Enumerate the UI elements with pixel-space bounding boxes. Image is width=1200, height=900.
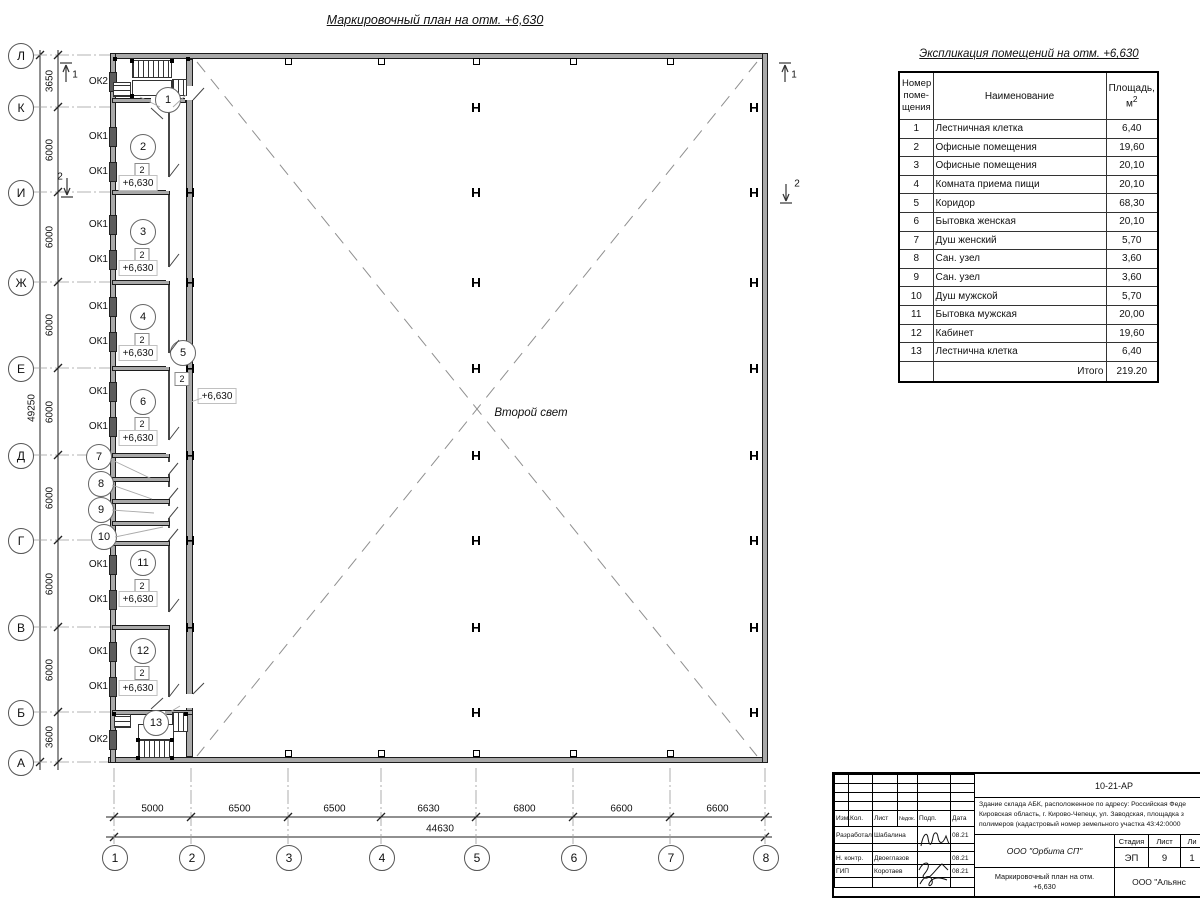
- project-description-line: полимеров (кадастровый номер земельного …: [979, 820, 1200, 830]
- stair-newel: [130, 94, 134, 98]
- axis-bubble-row: Г: [8, 528, 34, 554]
- room-number-cell: 6: [899, 212, 933, 231]
- tb-role: Разработал: [835, 827, 873, 844]
- door-opening: [166, 528, 171, 540]
- schedule-row: 2Офисные помещения19,60: [899, 138, 1158, 157]
- room-area-cell: 5,70: [1106, 287, 1158, 306]
- column-marker-icon: [667, 750, 674, 757]
- wall-interior: [112, 453, 170, 458]
- axis-bubble-col: 3: [276, 845, 302, 871]
- room-name-cell: Кабинет: [933, 324, 1106, 343]
- column-marker-icon: [473, 750, 480, 757]
- organization-name-2: ООО "Альянс: [1115, 868, 1200, 896]
- wall-right: [762, 53, 768, 763]
- stair-newel: [112, 712, 116, 716]
- stair-newel: [136, 738, 140, 742]
- schedule-header-area-line: Площадь,: [1109, 83, 1156, 94]
- room-area-cell: 3,60: [1106, 250, 1158, 269]
- schedule-row: 11Бытовка мужская20,00: [899, 305, 1158, 324]
- area-unit-sup: 2: [1133, 94, 1138, 104]
- stair-newel: [136, 756, 140, 760]
- sheet-title: Маркировочный план на отм. +6,630: [975, 868, 1115, 896]
- tb-col-podp: Подп.: [918, 811, 951, 827]
- wall-interior: [112, 499, 170, 504]
- second-light-label: Второй свет: [494, 407, 567, 419]
- window-label: ОК1: [74, 594, 108, 605]
- room-number-bubble: 5: [170, 340, 196, 366]
- window-symbol: [109, 162, 117, 182]
- section-mark-label: 1: [791, 70, 797, 81]
- room-number-cell: 1: [899, 120, 933, 139]
- room-number-cell: 3: [899, 157, 933, 176]
- axis-bubble-row: И: [8, 180, 34, 206]
- schedule-header-name: Наименование: [933, 72, 1106, 120]
- steel-column-icon: [472, 708, 480, 717]
- door-opening: [166, 697, 171, 710]
- stage-value: ЭП: [1115, 848, 1149, 868]
- window-symbol: [109, 642, 117, 662]
- stair-newel: [184, 712, 188, 716]
- stair-newel: [170, 756, 174, 760]
- tb-col-ndok: №док.: [898, 811, 918, 827]
- stair-newel: [186, 57, 190, 61]
- dimension-value: 6000: [45, 314, 56, 336]
- steel-column-icon: [472, 451, 480, 460]
- room-number-cell: 8: [899, 250, 933, 269]
- door-mark-box: 2: [135, 666, 150, 680]
- dimension-value: 6000: [45, 138, 56, 160]
- steel-column-icon: [472, 103, 480, 112]
- elevation-label: +6,630: [119, 345, 158, 361]
- steel-column-icon: [750, 364, 758, 373]
- room-name-cell: Душ женский: [933, 231, 1106, 250]
- title-block-right: 10-21-АР Здание склада АБК, расположенно…: [974, 774, 1200, 896]
- window-symbol: [109, 417, 117, 437]
- stage-header: Стадия: [1115, 835, 1149, 848]
- elevation-label: +6,630: [119, 680, 158, 696]
- tb-col-data: Дата: [951, 811, 975, 827]
- room-number-cell: 4: [899, 175, 933, 194]
- schedule-total-empty: [899, 361, 933, 382]
- window-label: ОК2: [74, 734, 108, 745]
- steel-column-icon: [472, 364, 480, 373]
- room-number-bubble: 7: [86, 444, 112, 470]
- room-number-cell: 2: [899, 138, 933, 157]
- steel-column-icon: [186, 278, 194, 287]
- door-opening: [166, 440, 171, 454]
- room-area-cell: 20,10: [1106, 175, 1158, 194]
- room-number-cell: 10: [899, 287, 933, 306]
- tb-col-kol: Кол.: [849, 811, 873, 827]
- window-symbol: [109, 730, 117, 750]
- steel-column-icon: [186, 188, 194, 197]
- stair-newel: [170, 738, 174, 742]
- axis-bubble-col: 2: [179, 845, 205, 871]
- steel-column-icon: [750, 103, 758, 112]
- room-name-cell: Лестнична клетка: [933, 343, 1106, 362]
- steel-column-icon: [750, 708, 758, 717]
- tb-col-list: Лист: [873, 811, 898, 827]
- project-description-line: Здание склада АБК, расположенное по адре…: [979, 800, 1200, 810]
- room-number-bubble: 1: [155, 87, 181, 113]
- column-marker-icon: [285, 58, 292, 65]
- dimension-value: 6800: [513, 804, 535, 815]
- sheet-header: Лист: [1149, 835, 1181, 848]
- dimension-value: 6630: [417, 804, 439, 815]
- schedule-row: 12Кабинет19,60: [899, 324, 1158, 343]
- dimension-value: 6500: [228, 804, 250, 815]
- area-unit: м: [1126, 98, 1133, 109]
- window-label: ОК1: [74, 131, 108, 142]
- room-area-cell: 6,40: [1106, 343, 1158, 362]
- door-mark-box: 2: [175, 372, 190, 386]
- signature: [918, 828, 952, 852]
- section-mark-label: 2: [57, 172, 63, 183]
- dimension-total: 49250: [27, 394, 38, 422]
- steel-column-icon: [472, 278, 480, 287]
- wall-bottom: [108, 757, 768, 763]
- stage-grid: Стадия Лист Ли ЭП 9 1: [1115, 835, 1200, 868]
- schedule-row: 5Коридор68,30: [899, 194, 1158, 213]
- room-number-cell: 5: [899, 194, 933, 213]
- room-name-cell: Комната приема пищи: [933, 175, 1106, 194]
- wall-interior: [112, 541, 170, 546]
- column-marker-icon: [570, 58, 577, 65]
- project-description: Здание склада АБК, расположенное по адре…: [975, 798, 1200, 835]
- wall-corridor-hall: [186, 59, 193, 757]
- tb-name: Шабалина: [873, 827, 918, 844]
- room-name-cell: Офисные помещения: [933, 157, 1106, 176]
- room-name-cell: Бытовка мужская: [933, 305, 1106, 324]
- room-number-bubble: 12: [130, 638, 156, 664]
- schedule-row: 1Лестничная клетка6,40: [899, 120, 1158, 139]
- tb-role: Н. контр.: [835, 852, 873, 865]
- room-number-cell: 12: [899, 324, 933, 343]
- dimension-value: 6000: [45, 486, 56, 508]
- stair-flight: [113, 82, 131, 97]
- steel-column-icon: [472, 623, 480, 632]
- column-marker-icon: [378, 58, 385, 65]
- schedule-header-number-line: поме-: [902, 90, 931, 102]
- axis-bubble-row: В: [8, 615, 34, 641]
- schedule-header-number-line: щения: [902, 102, 931, 114]
- window-symbol: [109, 215, 117, 235]
- room-schedule: Экспликация помещений на отм. +6,630 Ном…: [898, 48, 1160, 383]
- schedule-header-number-line: Номер: [902, 78, 931, 90]
- schedule-header-area: Площадь, м2: [1106, 72, 1158, 120]
- title-block: Изм. Кол. Лист №док. Подп. Дата Разработ…: [832, 772, 1200, 898]
- room-name-cell: Сан. узел: [933, 268, 1106, 287]
- room-number-bubble: 8: [88, 471, 114, 497]
- room-number-cell: 11: [899, 305, 933, 324]
- room-name-cell: Душ мужской: [933, 287, 1106, 306]
- window-symbol: [109, 332, 117, 352]
- column-marker-icon: [570, 750, 577, 757]
- door-opening: [185, 694, 194, 708]
- schedule-row: 10Душ мужской5,70: [899, 287, 1158, 306]
- schedule-row: 3Офисные помещения20,10: [899, 157, 1158, 176]
- column-marker-icon: [285, 750, 292, 757]
- sheets-header: Ли: [1181, 835, 1200, 848]
- window-symbol: [109, 677, 117, 697]
- window-label: ОК1: [74, 301, 108, 312]
- stair-flight: [132, 60, 172, 78]
- window-symbol: [109, 250, 117, 270]
- window-label: ОК1: [74, 219, 108, 230]
- tb-name: Двоеглазов: [873, 852, 918, 865]
- room-number-cell: 7: [899, 231, 933, 250]
- steel-column-icon: [472, 536, 480, 545]
- stair-newel: [130, 59, 134, 63]
- room-number-bubble: 6: [130, 389, 156, 415]
- room-area-cell: 20,10: [1106, 157, 1158, 176]
- window-symbol: [109, 555, 117, 575]
- tb-date: 08.21: [951, 827, 975, 844]
- sheet-title-line: +6,630: [1033, 882, 1056, 892]
- room-area-cell: 3,60: [1106, 268, 1158, 287]
- tb-role: ГИП: [835, 865, 873, 878]
- door-mark-box: 2: [135, 417, 150, 431]
- wall-interior: [112, 521, 170, 526]
- steel-column-icon: [472, 188, 480, 197]
- room-number-bubble: 2: [130, 134, 156, 160]
- sheets-value: 1: [1181, 848, 1200, 868]
- schedule-title: Экспликация помещений на отм. +6,630: [898, 48, 1160, 60]
- axis-bubble-row: Е: [8, 356, 34, 382]
- axis-bubble-col: 5: [464, 845, 490, 871]
- room-name-cell: Лестничная клетка: [933, 120, 1106, 139]
- tb-col-izm: Изм.: [835, 811, 849, 827]
- organization-name: ООО "Орбита СП": [975, 835, 1115, 868]
- window-symbol: [109, 590, 117, 610]
- room-area-cell: 19,60: [1106, 324, 1158, 343]
- schedule-row: 4Комната приема пищи20,10: [899, 175, 1158, 194]
- axis-bubble-row: К: [8, 95, 34, 121]
- room-number-bubble: 3: [130, 219, 156, 245]
- schedule-table: Номер поме- щения Наименование Площадь, …: [898, 71, 1159, 383]
- dimension-value: 6600: [706, 804, 728, 815]
- elevation-label: +6,630: [198, 388, 237, 404]
- dimension-value: 6500: [323, 804, 345, 815]
- dimension-total: 44630: [426, 824, 454, 835]
- tb-name: Коротаев: [873, 865, 918, 878]
- room-number-bubble: 10: [91, 524, 117, 550]
- window-label: ОК1: [74, 336, 108, 347]
- window-symbol: [109, 297, 117, 317]
- schedule-total-row: Итого 219.20: [899, 361, 1158, 382]
- window-label: ОК1: [74, 646, 108, 657]
- axis-bubble-col: 6: [561, 845, 587, 871]
- window-label: ОК1: [74, 421, 108, 432]
- project-description-line: Кировская область, г. Кирово-Чепецк, ул.…: [979, 810, 1200, 820]
- axis-bubble-col: 4: [369, 845, 395, 871]
- window-label: ОК1: [74, 254, 108, 265]
- room-number-bubble: 4: [130, 304, 156, 330]
- room-area-cell: 68,30: [1106, 194, 1158, 213]
- sheet-title-line: Маркировочный план на отм.: [995, 872, 1094, 882]
- stair-newel: [170, 59, 174, 63]
- schedule-header-area-unit: м2: [1109, 94, 1156, 109]
- door-opening: [166, 612, 171, 625]
- wall-interior: [112, 366, 170, 371]
- axis-bubble-col: 8: [753, 845, 779, 871]
- room-area-cell: 20,00: [1106, 305, 1158, 324]
- elevation-label: +6,630: [119, 591, 158, 607]
- wall-interior: [112, 625, 170, 630]
- wall-interior: [112, 280, 170, 285]
- column-marker-icon: [667, 58, 674, 65]
- door-opening: [166, 462, 171, 474]
- axis-bubble-row: Л: [8, 43, 34, 69]
- column-marker-icon: [473, 58, 480, 65]
- elevation-label: +6,630: [119, 430, 158, 446]
- room-area-cell: 6,40: [1106, 120, 1158, 139]
- axis-bubble-row: А: [8, 750, 34, 776]
- steel-column-icon: [750, 188, 758, 197]
- elevation-label: +6,630: [119, 175, 158, 191]
- window-symbol: [109, 382, 117, 402]
- tb-date: 08.21: [951, 852, 975, 865]
- room-number-bubble: 9: [88, 497, 114, 523]
- door-opening: [166, 267, 171, 281]
- axis-bubble-col: 1: [102, 845, 128, 871]
- signature: [916, 858, 952, 890]
- steel-column-icon: [750, 451, 758, 460]
- steel-column-icon: [750, 536, 758, 545]
- tb-name: [873, 844, 918, 852]
- window-label: ОК1: [74, 386, 108, 397]
- axis-bubble-col: 7: [658, 845, 684, 871]
- stair-newel: [113, 57, 117, 61]
- room-area-cell: 20,10: [1106, 212, 1158, 231]
- dimension-value: 3600: [45, 726, 56, 748]
- room-area-cell: 19,60: [1106, 138, 1158, 157]
- section-mark-label: 1: [72, 70, 78, 81]
- room-name-cell: Коридор: [933, 194, 1106, 213]
- schedule-total-label: Итого: [933, 361, 1106, 382]
- stair-flight: [138, 740, 174, 758]
- schedule-header-number: Номер поме- щения: [899, 72, 933, 120]
- window-label: ОК1: [74, 559, 108, 570]
- tb-date: 08.21: [951, 865, 975, 878]
- drawing-sheet: Маркировочный план на отм. +6,630 Второй…: [0, 0, 1200, 900]
- dimension-value: 6000: [45, 400, 56, 422]
- schedule-row: 13Лестнична клетка6,40: [899, 343, 1158, 362]
- window-label: ОК1: [74, 681, 108, 692]
- schedule-row: 9Сан. узел3,60: [899, 268, 1158, 287]
- dimension-value: 5000: [141, 804, 163, 815]
- stair-flight: [114, 714, 131, 728]
- column-marker-icon: [378, 750, 385, 757]
- door-opening: [166, 177, 171, 191]
- room-number-bubble: 11: [130, 550, 156, 576]
- dimension-value: 6000: [45, 658, 56, 680]
- window-symbol: [109, 127, 117, 147]
- door-opening: [166, 506, 171, 518]
- tb-date: [951, 844, 975, 852]
- dimension-value: 6000: [45, 572, 56, 594]
- dimension-value: 6600: [610, 804, 632, 815]
- sheet-value: 9: [1149, 848, 1181, 868]
- schedule-row: 7Душ женский5,70: [899, 231, 1158, 250]
- tb-role: [835, 844, 873, 852]
- room-name-cell: Бытовка женская: [933, 212, 1106, 231]
- room-name-cell: Офисные помещения: [933, 138, 1106, 157]
- wall-interior: [112, 477, 170, 482]
- steel-column-icon: [750, 278, 758, 287]
- steel-column-icon: [750, 623, 758, 632]
- room-name-cell: Сан. узел: [933, 250, 1106, 269]
- title-block-left-grid: Изм. Кол. Лист №док. Подп. Дата Разработ…: [834, 774, 975, 888]
- steel-column-icon: [186, 451, 194, 460]
- room-area-cell: 5,70: [1106, 231, 1158, 250]
- dimension-value: 6000: [45, 226, 56, 248]
- axis-bubble-row: Д: [8, 443, 34, 469]
- schedule-row: 8Сан. узел3,60: [899, 250, 1158, 269]
- plan-title: Маркировочный план на отм. +6,630: [255, 13, 615, 27]
- document-code: 10-21-АР: [975, 774, 1200, 798]
- section-mark-label: 2: [794, 179, 800, 190]
- door-opening: [166, 487, 171, 499]
- schedule-total-value: 219.20: [1106, 361, 1158, 382]
- schedule-row: 6Бытовка женская20,10: [899, 212, 1158, 231]
- steel-column-icon: [186, 536, 194, 545]
- axis-bubble-row: Ж: [8, 270, 34, 296]
- dimension-value: 3650: [45, 70, 56, 92]
- room-number-bubble: 13: [143, 710, 169, 736]
- window-label: ОК1: [74, 166, 108, 177]
- axis-bubble-row: Б: [8, 700, 34, 726]
- room-number-cell: 9: [899, 268, 933, 287]
- window-label: ОК2: [74, 76, 108, 87]
- elevation-label: +6,630: [119, 260, 158, 276]
- room-number-cell: 13: [899, 343, 933, 362]
- steel-column-icon: [186, 623, 194, 632]
